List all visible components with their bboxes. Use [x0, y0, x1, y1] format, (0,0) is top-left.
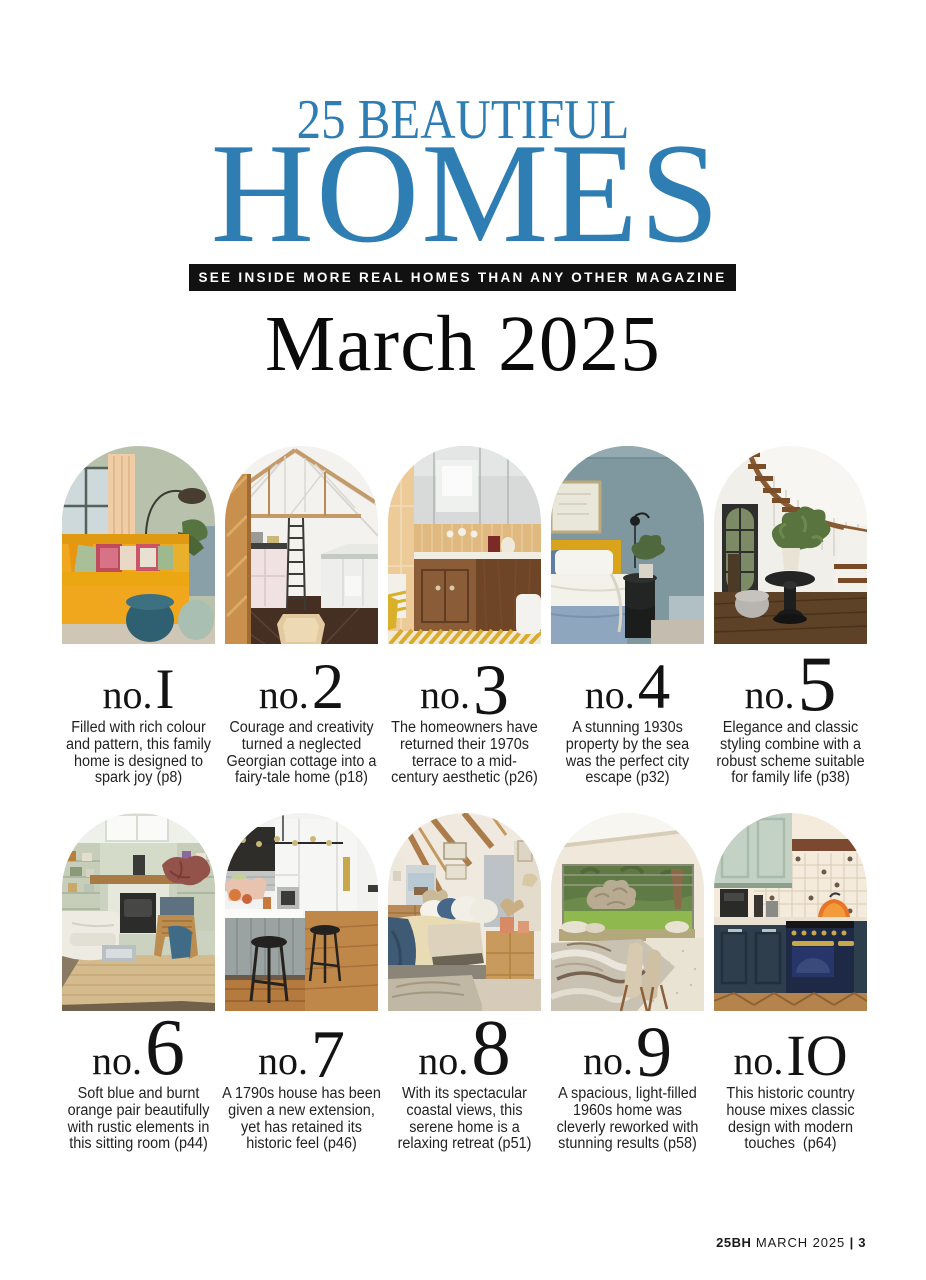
svg-text:no.4: no.4 [585, 654, 671, 720]
svg-text:no.IO: no.IO [733, 1023, 847, 1086]
svg-text:no.9: no.9 [583, 1020, 672, 1086]
svg-text:no.2: no.2 [259, 654, 345, 720]
svg-text:no.5: no.5 [745, 654, 837, 720]
svg-text:no.I: no.I [103, 658, 175, 720]
svg-text:no.3: no.3 [420, 654, 509, 720]
svg-text:no.8: no.8 [418, 1020, 511, 1086]
svg-text:no.6: no.6 [92, 1020, 185, 1086]
svg-text:no.7: no.7 [258, 1020, 345, 1086]
